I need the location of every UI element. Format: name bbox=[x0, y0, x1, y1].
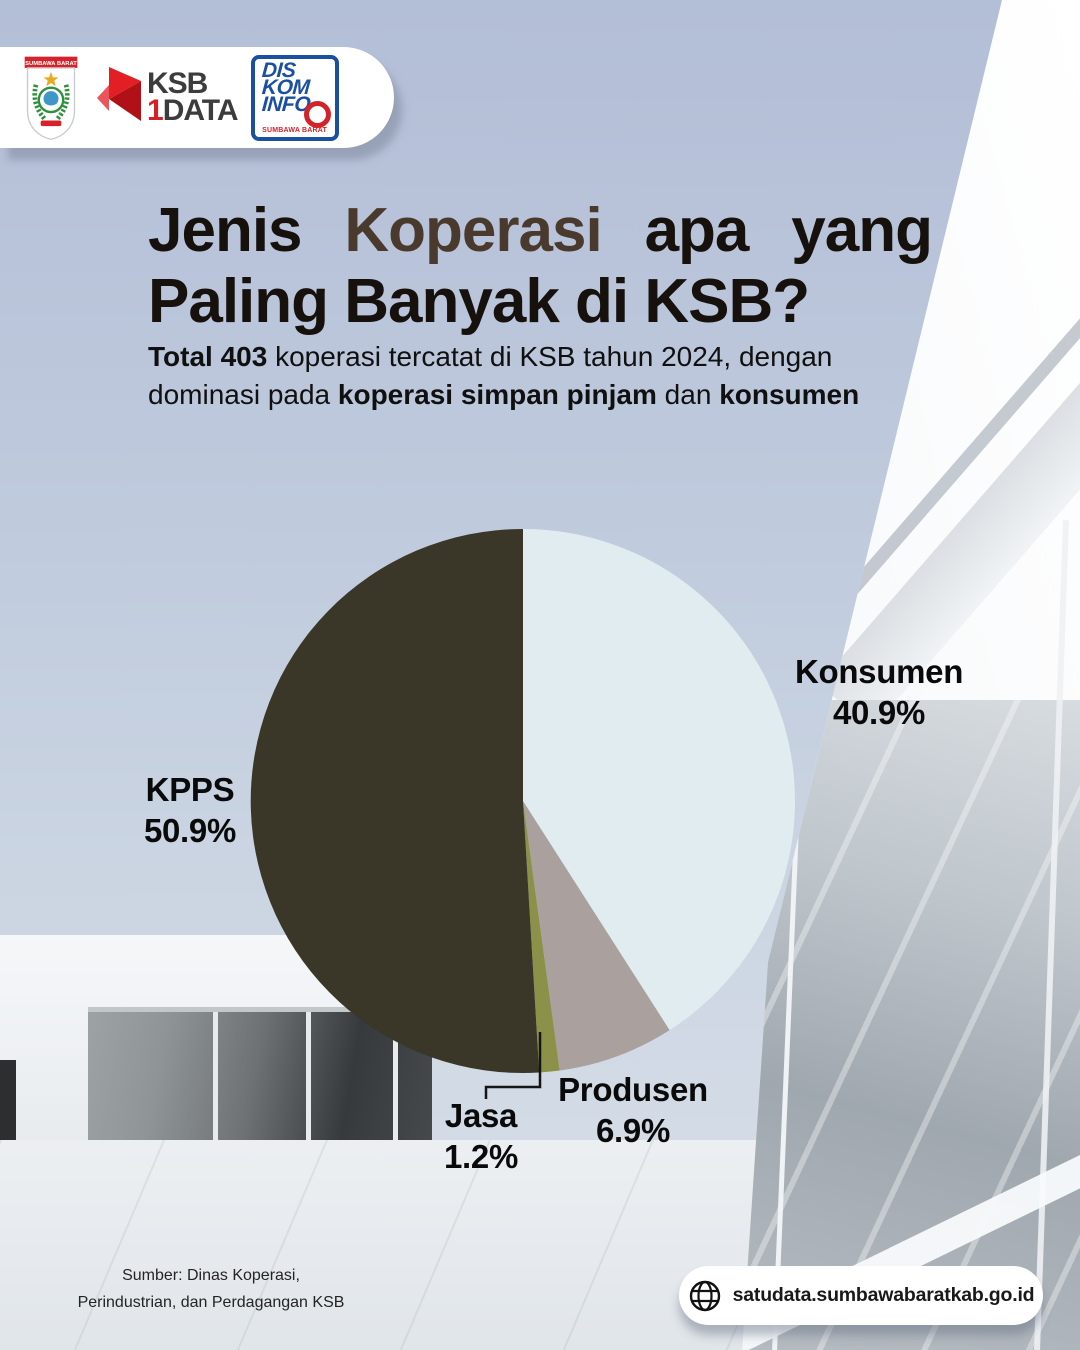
source-line2: Perindustrian, dan Perdagangan KSB bbox=[58, 1289, 364, 1316]
ksb-digit-one: 1 bbox=[147, 94, 163, 127]
title-line1: JenisKoperasiapayang bbox=[148, 200, 932, 262]
ksb-data-wordmark: KSB 1DATA bbox=[147, 71, 238, 124]
subtitle-segment: dan bbox=[657, 379, 719, 410]
globe-icon bbox=[688, 1279, 722, 1313]
diskominfo-logo: DIS KOM INFO SUMBAWA BARAT bbox=[251, 55, 339, 141]
title-word: Jenis bbox=[148, 200, 302, 262]
header-logo-pill: SUMBAWA BARAT KSB 1DATA DIS KOM INFO bbox=[0, 47, 394, 148]
diskominfo-subtext: SUMBAWA BARAT bbox=[255, 127, 335, 134]
diskominfo-lifebuoy-icon bbox=[304, 101, 331, 128]
source-note: Sumber: Dinas Koperasi, Perindustrian, d… bbox=[58, 1262, 364, 1316]
subtitle-segment: konsumen bbox=[719, 379, 859, 410]
konsumen-name: Konsumen bbox=[753, 652, 1005, 693]
sumbawa-barat-emblem: SUMBAWA BARAT bbox=[20, 54, 82, 142]
ksb-satu-data-logo: KSB 1DATA bbox=[95, 65, 238, 131]
title-word: yang bbox=[791, 200, 932, 262]
ksb-data-arrow-icon bbox=[95, 65, 145, 131]
jasa-pct: 1.2% bbox=[379, 1137, 583, 1178]
website-link-pill[interactable]: satudata.sumbawabaratkab.go.id bbox=[679, 1266, 1043, 1325]
jasa-name: Jasa bbox=[379, 1096, 583, 1137]
label-kpps: KPPS 50.9% bbox=[64, 770, 316, 852]
label-jasa: Jasa 1.2% bbox=[379, 1096, 583, 1178]
ksb-text-line2: DATA bbox=[163, 94, 238, 127]
website-url: satudata.sumbawabaratkab.go.id bbox=[733, 1284, 1035, 1307]
subtitle-segment: koperasi simpan pinjam bbox=[338, 379, 657, 410]
pie-slices bbox=[251, 529, 795, 1073]
title-highlight-word: Koperasi bbox=[344, 200, 601, 262]
emblem-banner-text: SUMBAWA BARAT bbox=[25, 61, 77, 67]
subtitle-segment: dominasi pada bbox=[148, 379, 338, 410]
infographic-poster: SUMBAWA BARAT KSB 1DATA DIS KOM INFO bbox=[0, 0, 1080, 1350]
source-line1: Sumber: Dinas Koperasi, bbox=[58, 1262, 364, 1289]
kpps-pct: 50.9% bbox=[64, 811, 316, 852]
subtitle-segment: Total 403 bbox=[148, 341, 275, 372]
title-line2: Paling Banyak di KSB? bbox=[148, 271, 932, 333]
kpps-name: KPPS bbox=[64, 770, 316, 811]
title-word: apa bbox=[645, 200, 749, 262]
konsumen-pct: 40.9% bbox=[753, 693, 1005, 734]
subtitle: Total 403 koperasi tercatat di KSB tahun… bbox=[148, 338, 948, 414]
subtitle-segment: koperasi tercatat di KSB tahun 2024, den… bbox=[275, 341, 832, 372]
label-konsumen: Konsumen 40.9% bbox=[753, 652, 1005, 734]
page-title: JenisKoperasiapayang Paling Banyak di KS… bbox=[148, 200, 932, 333]
